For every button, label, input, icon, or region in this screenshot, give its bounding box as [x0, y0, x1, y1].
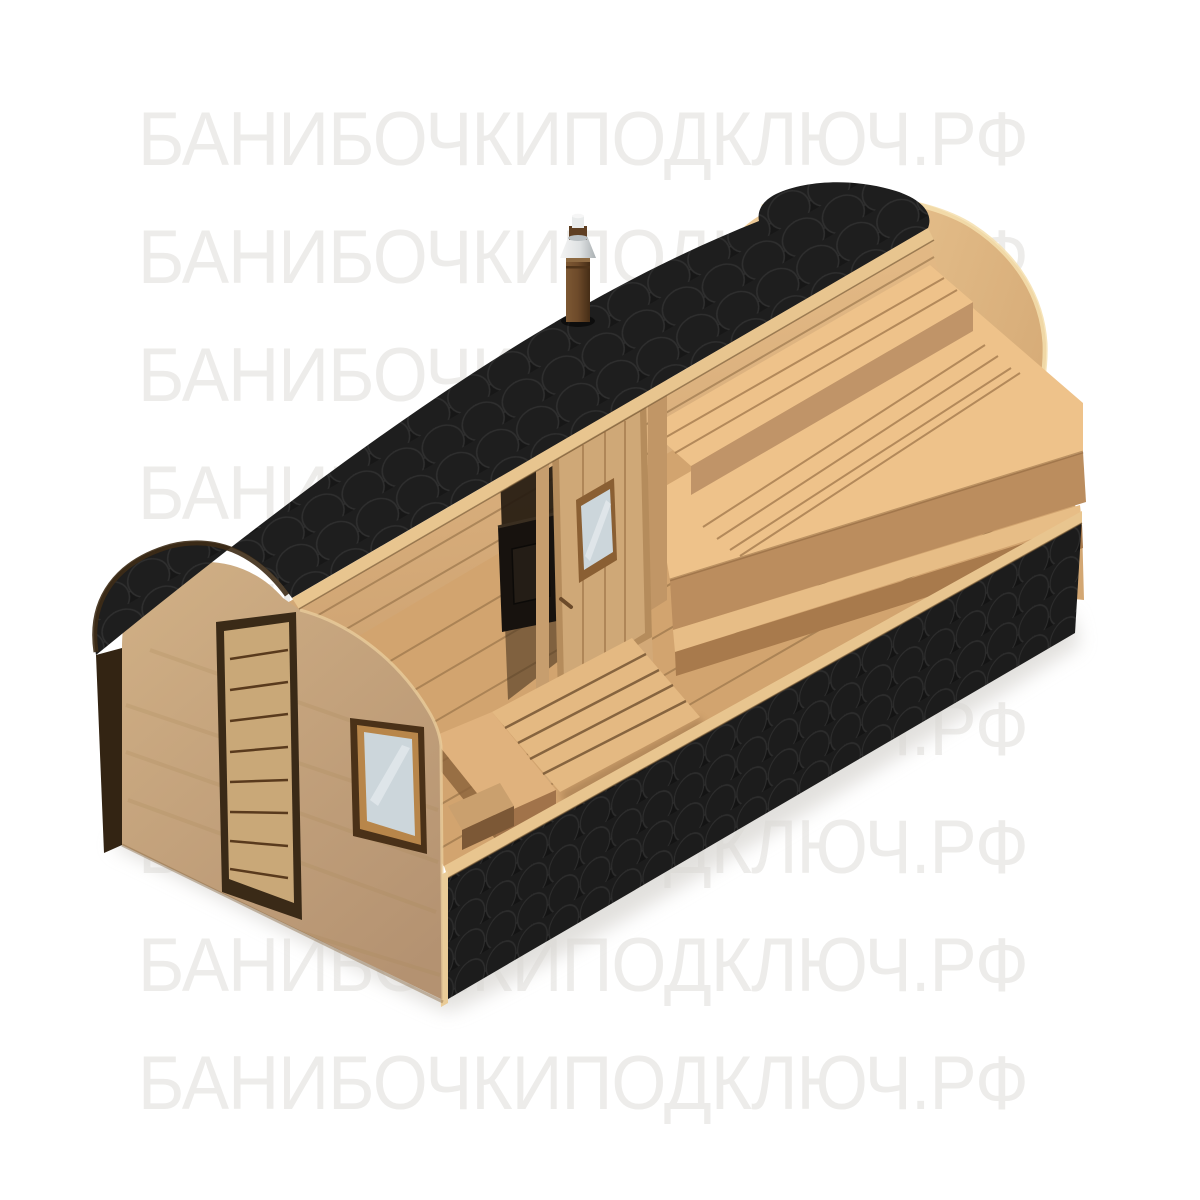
front-window — [350, 718, 427, 854]
sauna-stove — [498, 513, 562, 632]
front-door — [216, 612, 302, 920]
sauna-cutaway-render — [0, 0, 1200, 1200]
product-render-stage: БАНИБОЧКИПОДКЛЮЧ.РФ БАНИБОЧКИПОДКЛЮЧ.РФ … — [0, 0, 1200, 1200]
